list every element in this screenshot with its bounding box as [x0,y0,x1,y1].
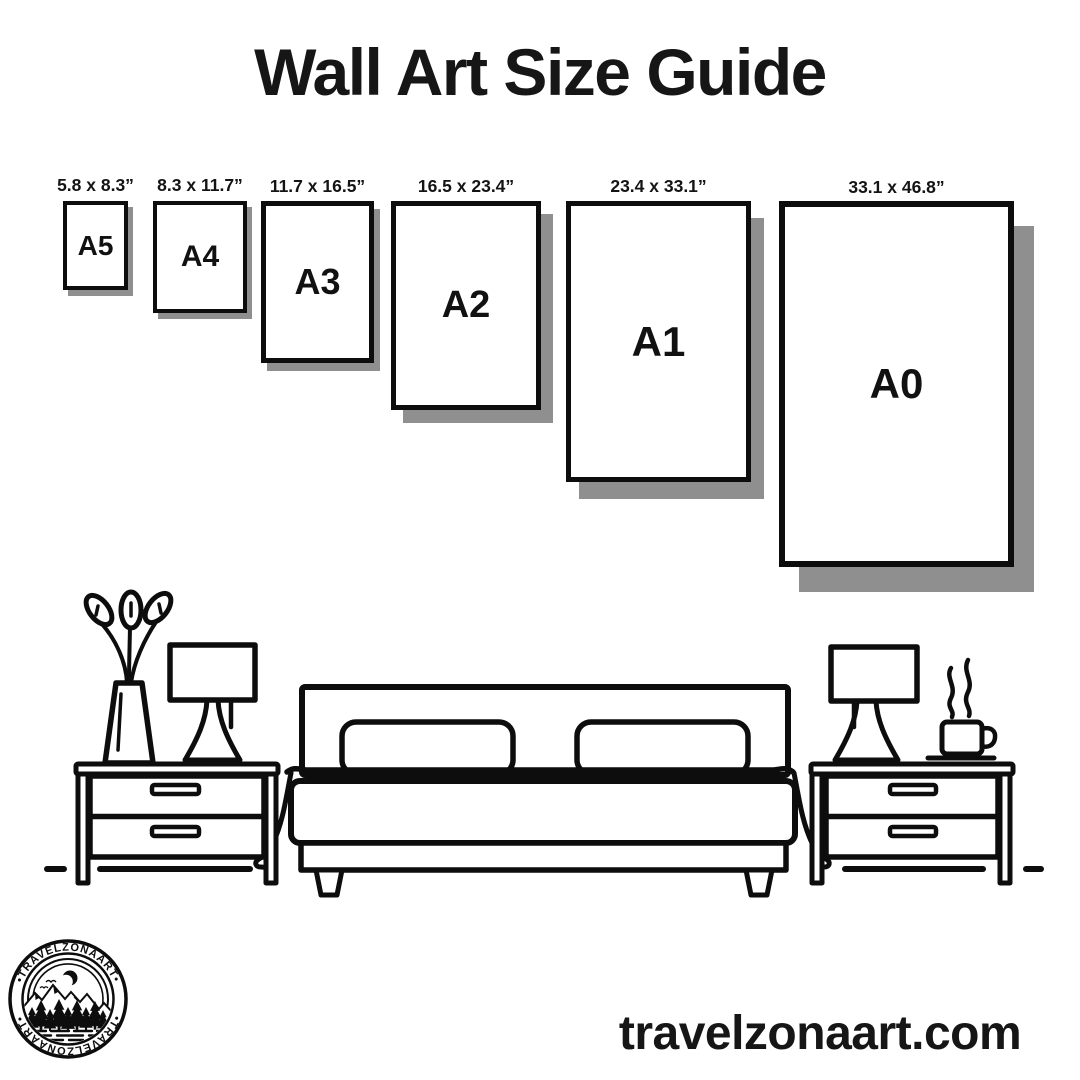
paper-size-a1: 23.4 x 33.1” A1 [566,201,751,482]
lamp-right-icon [831,647,917,760]
paper-size-a0: 33.1 x 46.8” A0 [779,201,1014,567]
paper-label-a2: A2 [442,284,491,327]
paper-size-a2: 16.5 x 23.4” A2 [391,201,541,410]
steam-icon [949,660,969,717]
paper-label-a1: A1 [632,318,686,366]
bed-icon [256,687,829,895]
paper-size-a5: 5.8 x 8.3” A5 [63,201,128,290]
bedroom-illustration [0,580,1080,900]
coffee-cup-icon [928,660,995,758]
nightstand-right [811,764,1013,883]
paper-label-a5: A5 [78,230,114,262]
plant-icon [81,589,176,763]
paper-label-a4: A4 [181,240,219,274]
size-guide-poster: Wall Art Size Guide 5.8 x 8.3” A5 8.3 x … [0,0,1080,1080]
nightstand-left [76,764,278,883]
paper-label-a0: A0 [870,360,924,408]
paper-dims-a3: 11.7 x 16.5” [270,176,365,197]
brand-logo: •TRAVELZONAART• •TRAVELZONAART• [2,933,134,1065]
page-title: Wall Art Size Guide [0,34,1080,110]
paper-label-a3: A3 [294,261,340,303]
paper-size-a4: 8.3 x 11.7” A4 [153,201,247,313]
paper-dims-a5: 5.8 x 8.3” [57,175,134,196]
paper-dims-a0: 33.1 x 46.8” [848,177,944,198]
paper-dims-a2: 16.5 x 23.4” [418,176,514,197]
paper-dims-a1: 23.4 x 33.1” [610,176,706,197]
website-url: travelzonaart.com [540,1006,1080,1061]
paper-size-a3: 11.7 x 16.5” A3 [261,201,374,363]
paper-dims-a4: 8.3 x 11.7” [157,175,243,196]
lamp-left-icon [170,645,255,760]
